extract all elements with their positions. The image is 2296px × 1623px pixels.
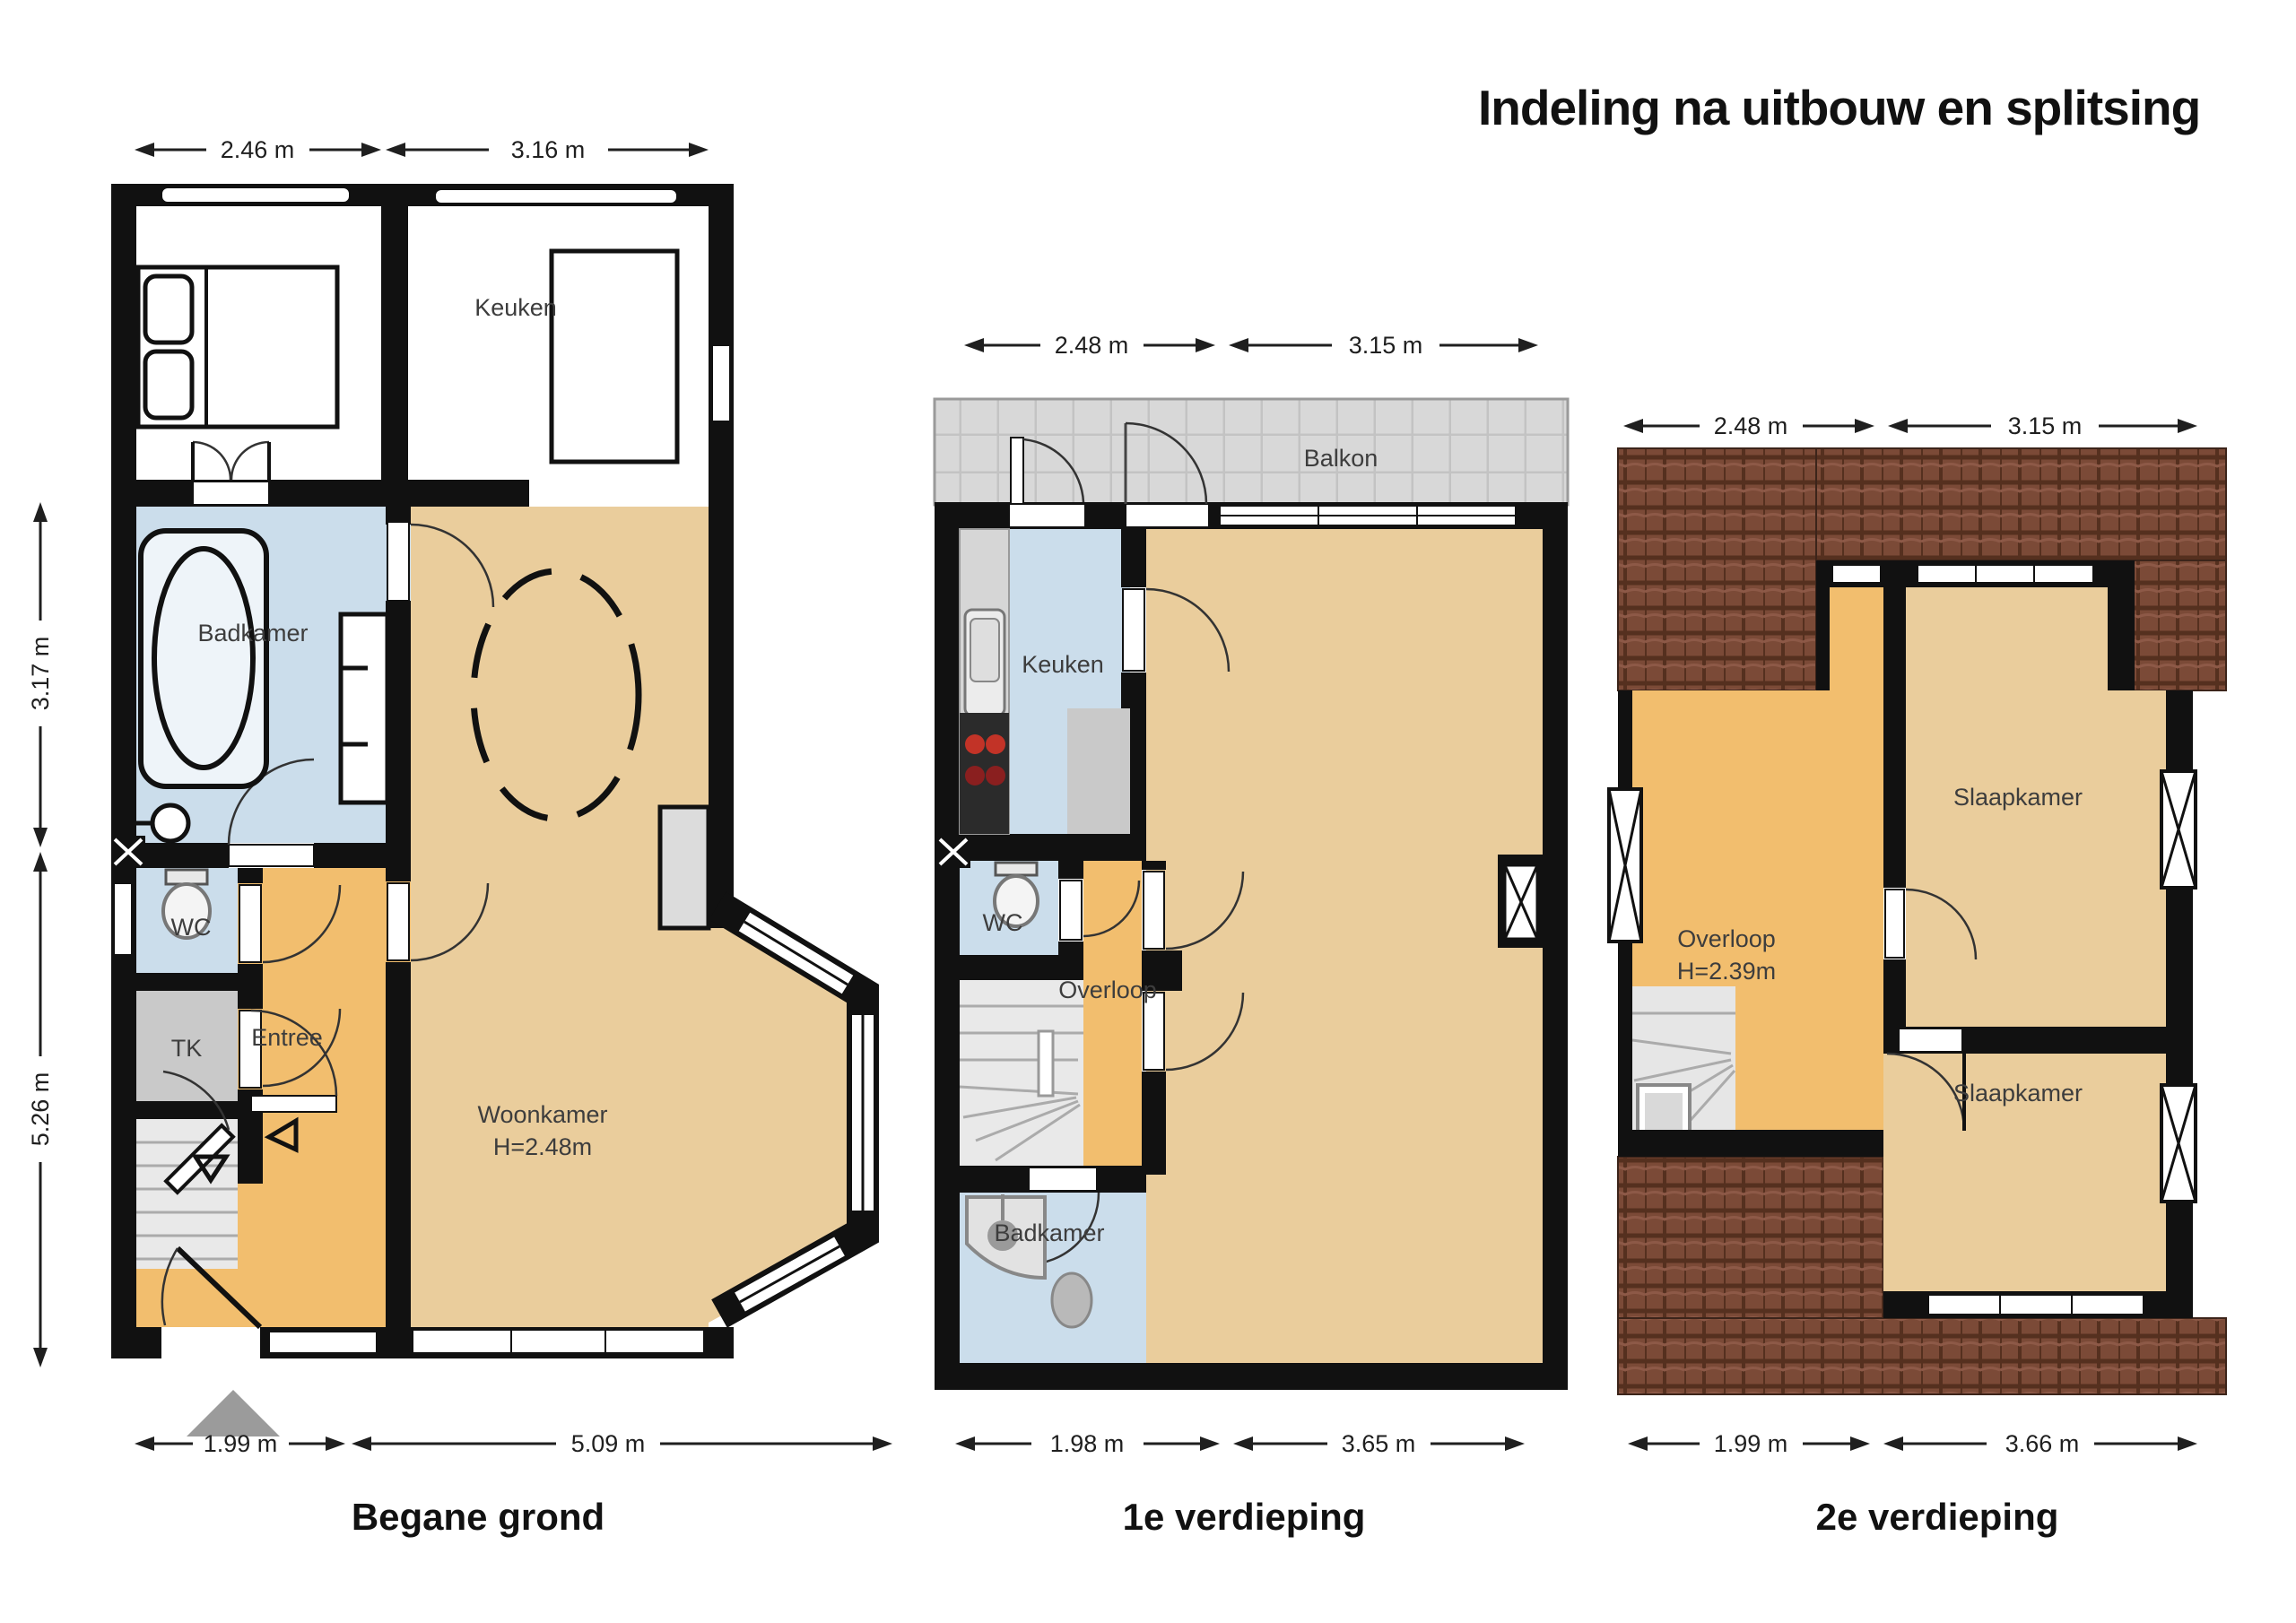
dim-second-top-2: 3.15 m xyxy=(1888,412,2197,439)
window xyxy=(1928,1295,2144,1315)
second-slaapkamer2-label: Slaapkamer xyxy=(1953,1080,2083,1107)
window xyxy=(114,883,132,955)
dim-text: 2.48 m xyxy=(1714,412,1788,439)
ground-entree-label: Entree xyxy=(251,1024,323,1051)
dim-first-bottom-1: 1.98 m xyxy=(955,1430,1220,1457)
sink-icon xyxy=(1052,1273,1091,1327)
dim-second-top-1: 2.48 m xyxy=(1623,412,1874,439)
window xyxy=(712,345,730,421)
second-slaapkamer1-label: Slaapkamer xyxy=(1953,784,2083,811)
first-keuken-label: Keuken xyxy=(1022,651,1104,678)
first-stairs xyxy=(960,980,1083,1166)
dim-ground-left-1: 3.17 m xyxy=(27,502,54,847)
door xyxy=(239,885,261,962)
ground-woonkamer-height-label: H=2.48m xyxy=(493,1133,592,1160)
dim-text: 3.65 m xyxy=(1342,1430,1416,1457)
first-overloop-label: Overloop xyxy=(1058,976,1157,1003)
first-floor-name: 1e verdieping xyxy=(1056,1496,1432,1539)
flue-box-icon xyxy=(1498,855,1543,948)
door xyxy=(1885,890,1904,958)
dim-text: 5.09 m xyxy=(571,1430,646,1457)
first-living-floor xyxy=(1146,529,1543,1363)
ground-hall-floor xyxy=(136,1269,238,1327)
ground-woonkamer-label: Woonkamer xyxy=(477,1101,607,1128)
second-floor-name: 2e verdieping xyxy=(1749,1496,2126,1539)
dim-second-bottom-2: 3.66 m xyxy=(1883,1430,2197,1457)
first-floor-plan: Balkon Keuken WC Overloop Badkamer 2.48 … xyxy=(924,323,1587,1578)
ground-floor-name: Begane grond xyxy=(290,1496,666,1539)
second-overloop-label: Overloop xyxy=(1677,925,1776,952)
door xyxy=(387,522,409,601)
dim-text: 2.48 m xyxy=(1055,332,1129,359)
sink-icon xyxy=(152,805,188,841)
window xyxy=(435,189,677,204)
dim-ground-top-2: 3.16 m xyxy=(386,136,709,163)
balkon-floor xyxy=(935,399,1568,505)
dim-text: 5.26 m xyxy=(27,1072,54,1147)
dim-ground-bottom-2: 5.09 m xyxy=(352,1430,892,1457)
first-balkon-label: Balkon xyxy=(1304,445,1378,472)
vestibule-door xyxy=(251,1096,336,1112)
balkon-door xyxy=(1126,504,1209,527)
door xyxy=(387,883,409,960)
second-overloop-height-label: H=2.39m xyxy=(1677,958,1776,985)
dim-ground-bottom-1: 1.99 m xyxy=(135,1430,345,1457)
dim-text: 3.16 m xyxy=(511,136,586,163)
dim-text: 2.46 m xyxy=(221,136,295,163)
balkon-door xyxy=(1009,504,1085,527)
dim-text: 3.17 m xyxy=(27,637,54,711)
chimney-icon xyxy=(936,836,970,868)
door xyxy=(1144,993,1164,1070)
chimney-breast xyxy=(660,807,709,928)
page-title: Indeling na uitbouw en splitsing xyxy=(1478,79,2267,136)
window xyxy=(1918,565,2093,583)
dim-first-top-1: 2.48 m xyxy=(964,332,1215,359)
dim-first-bottom-2: 3.65 m xyxy=(1233,1430,1525,1457)
kitchen-table-icon xyxy=(552,251,677,462)
skylight-window-icon xyxy=(2161,771,2196,888)
french-door xyxy=(193,482,269,505)
first-badkamer-label: Badkamer xyxy=(994,1219,1104,1246)
door xyxy=(1123,589,1144,671)
dim-text: 1.99 m xyxy=(1714,1430,1788,1457)
door xyxy=(1899,1028,1962,1052)
dim-second-bottom-1: 1.99 m xyxy=(1628,1430,1870,1457)
dim-text: 3.15 m xyxy=(1349,332,1423,359)
chimney-icon xyxy=(111,836,145,868)
dim-text: 3.66 m xyxy=(2005,1430,2080,1457)
dim-text: 1.98 m xyxy=(1050,1430,1125,1457)
door xyxy=(1144,872,1164,949)
skylight-window-icon xyxy=(1609,789,1641,942)
dim-ground-top-1: 2.46 m xyxy=(135,136,381,163)
ground-badkamer-label: Badkamer xyxy=(197,620,308,647)
first-wc-label: WC xyxy=(983,909,1023,936)
window xyxy=(269,1332,377,1353)
bathtub-icon xyxy=(141,531,266,786)
door xyxy=(229,845,314,866)
ground-wc-label: WC xyxy=(171,914,212,941)
dim-ground-left-2: 5.26 m xyxy=(27,852,54,1367)
window xyxy=(161,187,350,203)
door xyxy=(1029,1167,1097,1191)
dim-text: 3.15 m xyxy=(2008,412,2083,439)
door xyxy=(1060,881,1082,940)
ground-keuken-label: Keuken xyxy=(474,294,557,321)
window xyxy=(413,1330,704,1353)
bed-icon xyxy=(138,267,337,427)
front-door-opening xyxy=(161,1327,260,1358)
door-leaf xyxy=(1011,438,1023,504)
ground-tk-label: TK xyxy=(171,1035,203,1062)
floorplan-page: Indeling na uitbouw en splitsing xyxy=(0,0,2296,1623)
second-dormer-floor xyxy=(1830,587,1883,690)
skylight-window-icon xyxy=(2161,1085,2196,1202)
radiator-icon xyxy=(341,614,387,803)
window xyxy=(1832,565,1881,583)
ground-floor-plan: Keuken Badkamer WC TK Entree Woonkamer H… xyxy=(27,117,933,1515)
counter-block xyxy=(1067,708,1130,834)
second-floor-plan: Slaapkamer Overloop H=2.39m Slaapkamer 2… xyxy=(1605,386,2242,1587)
dim-first-top-2: 3.15 m xyxy=(1229,332,1538,359)
dim-text: 1.99 m xyxy=(204,1430,278,1457)
